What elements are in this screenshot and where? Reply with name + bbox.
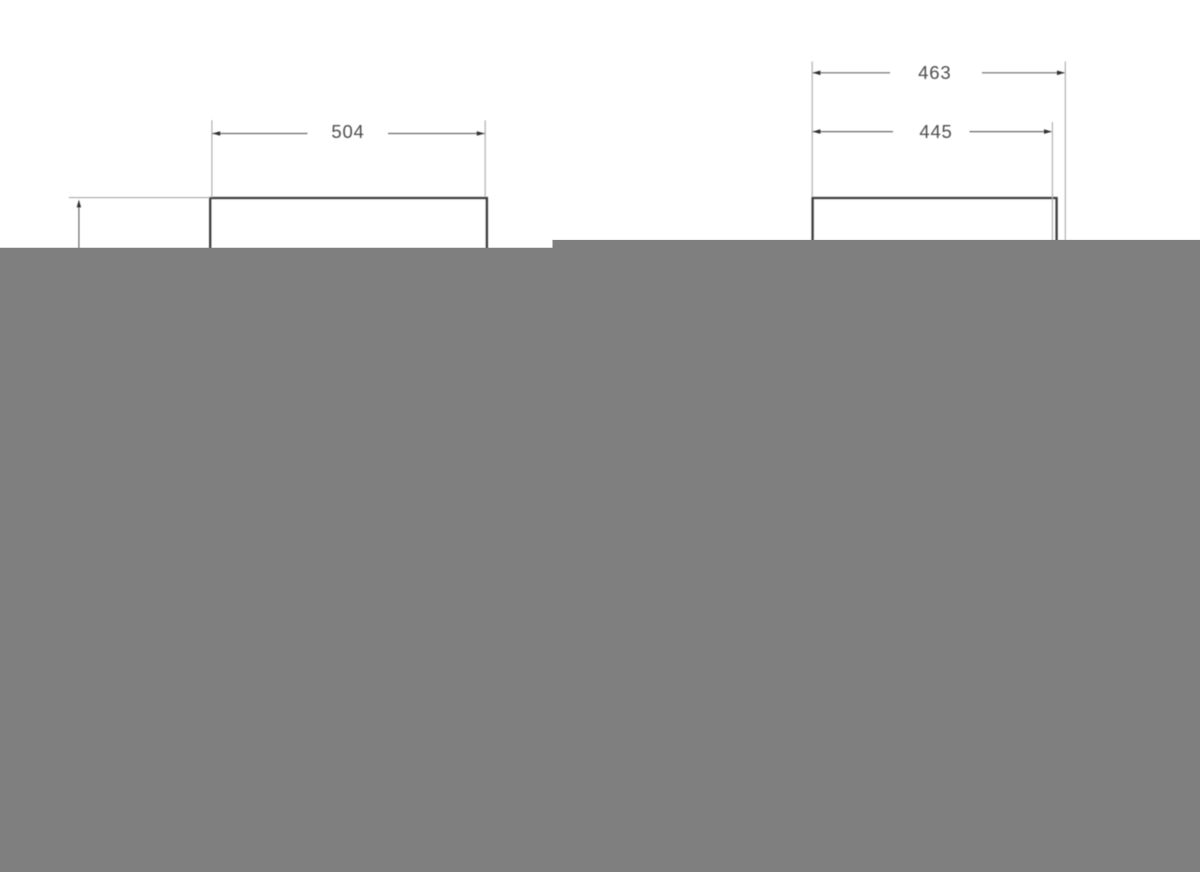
svg-text:463: 463: [918, 62, 951, 83]
svg-text:445: 445: [919, 121, 952, 142]
svg-text:504: 504: [331, 121, 364, 142]
